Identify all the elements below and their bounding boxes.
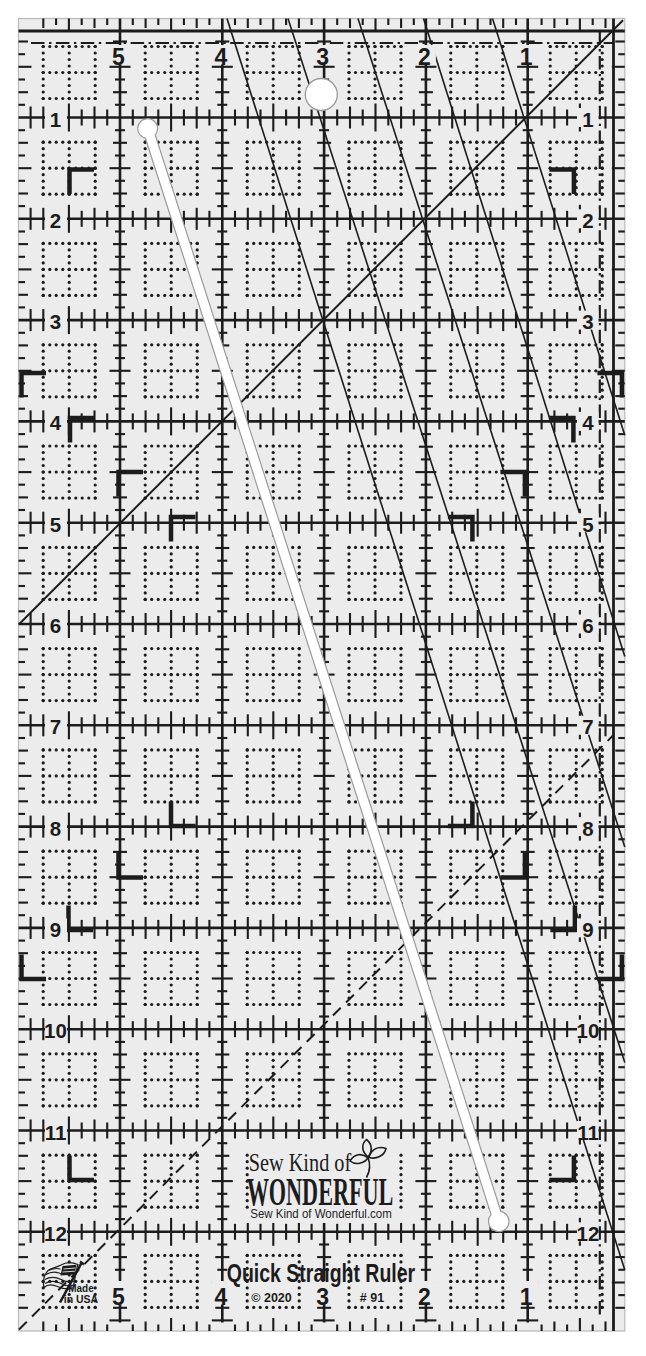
svg-text:8: 8 [50,817,61,840]
svg-text:1: 1 [520,1284,533,1310]
svg-text:# 91: # 91 [360,1291,384,1305]
svg-text:5: 5 [112,44,125,70]
svg-text:5: 5 [582,513,593,536]
svg-text:1: 1 [50,108,61,131]
svg-text:8: 8 [582,817,593,840]
svg-text:in USA: in USA [64,1293,99,1305]
svg-text:11: 11 [577,1121,599,1144]
svg-text:4: 4 [214,44,227,70]
svg-text:6: 6 [50,614,61,637]
svg-text:3: 3 [582,310,593,333]
svg-text:9: 9 [582,918,593,941]
svg-text:9: 9 [50,918,61,941]
svg-text:2: 2 [50,209,61,232]
svg-text:© 2020: © 2020 [251,1291,292,1305]
svg-text:10: 10 [577,1019,600,1042]
svg-text:5: 5 [112,1284,125,1310]
svg-text:1: 1 [582,108,593,131]
svg-text:4: 4 [214,1284,227,1310]
svg-text:12: 12 [44,1222,67,1245]
svg-text:1: 1 [520,44,533,70]
svg-text:2: 2 [582,209,593,232]
svg-text:2: 2 [418,1284,431,1310]
svg-text:4: 4 [582,411,594,434]
svg-text:5: 5 [50,513,61,536]
svg-text:11: 11 [45,1121,67,1144]
svg-text:3: 3 [316,44,329,70]
svg-text:Quick Straight Ruler: Quick Straight Ruler [227,1260,416,1288]
svg-text:4: 4 [50,411,62,434]
svg-text:7: 7 [582,715,593,738]
svg-text:6: 6 [582,614,593,637]
svg-text:Sew Kind of Wonderful.com: Sew Kind of Wonderful.com [250,1207,392,1222]
svg-text:7: 7 [50,715,61,738]
svg-text:2: 2 [418,44,431,70]
svg-text:10: 10 [44,1019,67,1042]
svg-text:12: 12 [577,1222,600,1245]
svg-text:3: 3 [50,310,61,333]
